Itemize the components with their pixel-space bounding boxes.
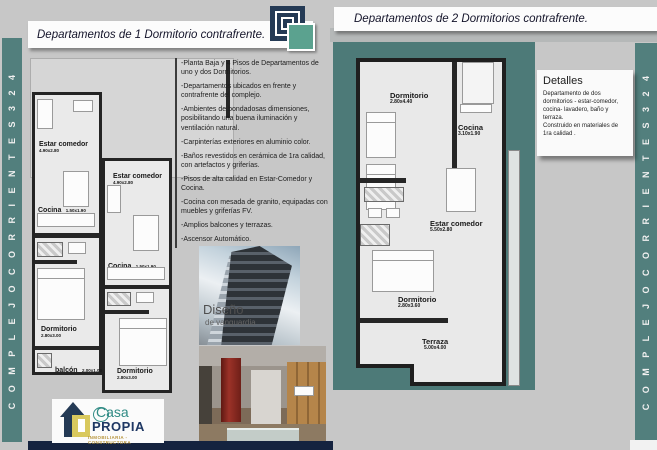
bed-pillow bbox=[120, 319, 166, 329]
bed-pillow bbox=[373, 251, 433, 261]
kitchen-counter bbox=[37, 213, 95, 227]
text-divider-line bbox=[175, 58, 177, 248]
wall bbox=[35, 260, 77, 264]
kitchen-counter bbox=[107, 267, 165, 280]
room-label-dorm2-c: Dormitorio 2.80x3.60 bbox=[398, 296, 436, 310]
room-dims: 4.90x2.80 bbox=[39, 149, 88, 154]
photo-building: Diseño de vanguardia bbox=[199, 246, 300, 345]
wall bbox=[105, 285, 169, 289]
room-dims: 2.00x1.00 bbox=[82, 368, 102, 373]
wall bbox=[360, 318, 448, 323]
corner-white bbox=[630, 440, 657, 450]
room-dims: 3.10x1.90 bbox=[458, 132, 483, 138]
room-label-dorm-b: Dormitorio 2.80x3.00 bbox=[117, 368, 153, 381]
wall bbox=[360, 178, 406, 183]
feature-item: -Cocina con mesada de granito, equipadas… bbox=[181, 198, 332, 216]
room-label-estar-c: Estar comedor 5.50x2.80 bbox=[430, 220, 483, 234]
room-dims: 2.80x3.00 bbox=[41, 334, 77, 339]
presentation-board: C O M P L E J O C O R R I E N T E S 3 2 … bbox=[0, 0, 657, 450]
shaft-box bbox=[462, 62, 494, 104]
dark-edge bbox=[199, 366, 212, 428]
closet bbox=[364, 187, 404, 202]
feature-item: -Ascensor Automático. bbox=[181, 235, 332, 244]
plan-c: Dormitorio 2.80x4.40 Cocina 3.10x1.90 Es… bbox=[356, 58, 506, 386]
feature-item: -Carpinterías exteriores en aluminio col… bbox=[181, 138, 332, 147]
sofa bbox=[37, 99, 53, 129]
details-title: Detalles bbox=[543, 75, 627, 87]
room-dims: 5.00x4.00 bbox=[422, 346, 448, 352]
feature-item: -Planta Baja y 4 Pisos de Departamentos … bbox=[181, 59, 332, 77]
bed bbox=[119, 318, 167, 366]
red-column bbox=[221, 358, 241, 422]
bath-tiles bbox=[37, 242, 63, 257]
logo-casa: Casa bbox=[96, 404, 129, 420]
details-card: Detalles Departamento de dos dormitorios… bbox=[537, 70, 633, 156]
details-body: Departamento de dos dormitorios - estar-… bbox=[543, 90, 627, 139]
wall bbox=[35, 233, 99, 238]
microwave bbox=[294, 386, 314, 396]
bed-pillow bbox=[38, 269, 84, 279]
bed bbox=[37, 268, 85, 320]
room-dims: 4.90x2.80 bbox=[113, 181, 162, 186]
dining-table bbox=[133, 215, 159, 251]
room-dims: 2.80x3.00 bbox=[117, 376, 153, 381]
wall bbox=[35, 346, 99, 350]
room-dims: 5.50x2.80 bbox=[430, 228, 483, 234]
photo-interior bbox=[199, 346, 326, 446]
bath-tiles bbox=[360, 224, 390, 246]
strip-text-left: C O M P L E J O C O R R I E N T E S 3 2 … bbox=[7, 71, 17, 409]
room-dims: 2.80x4.40 bbox=[390, 100, 428, 106]
room-label-terraza: Terraza 5.00x4.00 bbox=[422, 338, 448, 352]
right-vertical-strip: C O M P L E J O C O R R I E N T E S 3 2 … bbox=[635, 43, 657, 440]
bed-pillow bbox=[367, 113, 395, 123]
feature-item: -Ambientes de bondadosas dimensiones, po… bbox=[181, 105, 332, 132]
title-left: Departamentos de 1 Dormitorio contrafren… bbox=[37, 29, 265, 41]
bath-tiles bbox=[107, 292, 131, 306]
photo-overlay-subtitle: de vanguardia bbox=[205, 318, 256, 327]
plan-b: Estar comedor 4.90x2.80 Cocina 1.50x1.90… bbox=[102, 158, 172, 393]
bed-single-1 bbox=[366, 112, 396, 158]
room-label-estar-a: Estar comedor 4.90x2.80 bbox=[39, 141, 88, 154]
room-label-estar-b: Estar comedor 4.90x2.80 bbox=[113, 173, 162, 186]
white-column bbox=[251, 370, 281, 428]
sofa bbox=[107, 185, 121, 213]
wall bbox=[105, 310, 149, 314]
bath-fixture bbox=[136, 292, 154, 303]
house-side bbox=[64, 413, 72, 437]
room-dims: 2.80x3.60 bbox=[398, 304, 436, 310]
balcony-planter bbox=[37, 353, 52, 368]
side-corridor bbox=[508, 150, 520, 386]
photo-overlay-title: Diseño bbox=[203, 302, 243, 317]
room-label-dorm-a: Dormitorio 2.80x3.00 bbox=[41, 326, 77, 339]
bath-fixture bbox=[68, 242, 86, 254]
wall bbox=[452, 62, 457, 174]
features-list: -Planta Baja y 4 Pisos de Departamentos … bbox=[181, 59, 332, 250]
logo-card: Casa PROPIA INMOBILIARIA - CONSTRUCTORA bbox=[52, 399, 164, 443]
title-card-right: Departamentos de 2 Dormitorios contrafre… bbox=[334, 7, 657, 31]
logo-propia: PROPIA bbox=[92, 419, 145, 434]
teal-square bbox=[287, 23, 315, 51]
bath-fixture bbox=[368, 208, 382, 218]
bed-double bbox=[372, 250, 434, 292]
feature-item: -Pisos de alta calidad en Estar-Comedor … bbox=[181, 175, 332, 193]
room-label-balcon: balcón 2.00x1.00 bbox=[55, 359, 102, 377]
title-right: Departamentos de 2 Dormitorios contrafre… bbox=[354, 13, 588, 25]
bed-pillow bbox=[367, 165, 395, 175]
left-vertical-strip: C O M P L E J O C O R R I E N T E S 3 2 … bbox=[2, 38, 22, 442]
bath-fixture bbox=[386, 208, 400, 218]
squares-logo-icon bbox=[264, 3, 316, 53]
kitchen-counter bbox=[460, 104, 492, 113]
strip-text-right: C O M P L E J O C O R R I E N T E S 3 2 … bbox=[641, 72, 651, 410]
terrace-notch bbox=[356, 364, 414, 386]
room-name: balcón bbox=[55, 367, 78, 374]
tv-unit bbox=[73, 100, 93, 112]
feature-item: -Departamentos ubicados en frente y cont… bbox=[181, 82, 332, 100]
room-label-cocina-c: Cocina 3.10x1.90 bbox=[458, 124, 483, 138]
feature-item: -Amplios balcones y terrazas. bbox=[181, 221, 332, 230]
house-door bbox=[78, 419, 85, 432]
dining-table bbox=[446, 168, 476, 212]
plan-a: Estar comedor 4.90x2.80 Cocina 1.50x1.90… bbox=[32, 92, 102, 375]
room-label-dorm1-c: Dormitorio 2.80x4.40 bbox=[390, 92, 428, 106]
logo-subtitle: INMOBILIARIA - CONSTRUCTORA bbox=[88, 435, 164, 445]
feature-item: -Baños revestidos en cerámica de 1ra cal… bbox=[181, 152, 332, 170]
